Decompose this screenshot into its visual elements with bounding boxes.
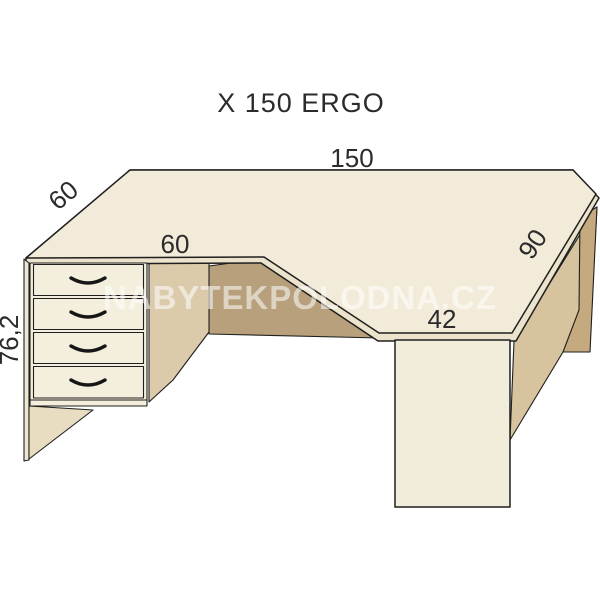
dim-label-right-front-width: 42 (428, 304, 457, 334)
desk-technical-drawing: NABYTEKPOLODNA.CZ X 150 ERGO 150 60 60 9… (0, 0, 600, 600)
dim-label-back-width: 150 (330, 143, 373, 173)
drawer-front (34, 367, 144, 399)
dim-label-left-depth: 60 (42, 174, 83, 216)
page-title: X 150 ERGO (217, 88, 385, 118)
dim-label-kneehole-width: 60 (161, 229, 190, 259)
dim-label-height: 76,2 (0, 315, 24, 366)
left-side-panel-edge (24, 259, 29, 461)
left-side-panel-foot (29, 406, 93, 459)
drawer-front (34, 333, 144, 364)
center-leg-panel (395, 340, 510, 507)
drawer-unit-bottom-edge (30, 400, 147, 406)
